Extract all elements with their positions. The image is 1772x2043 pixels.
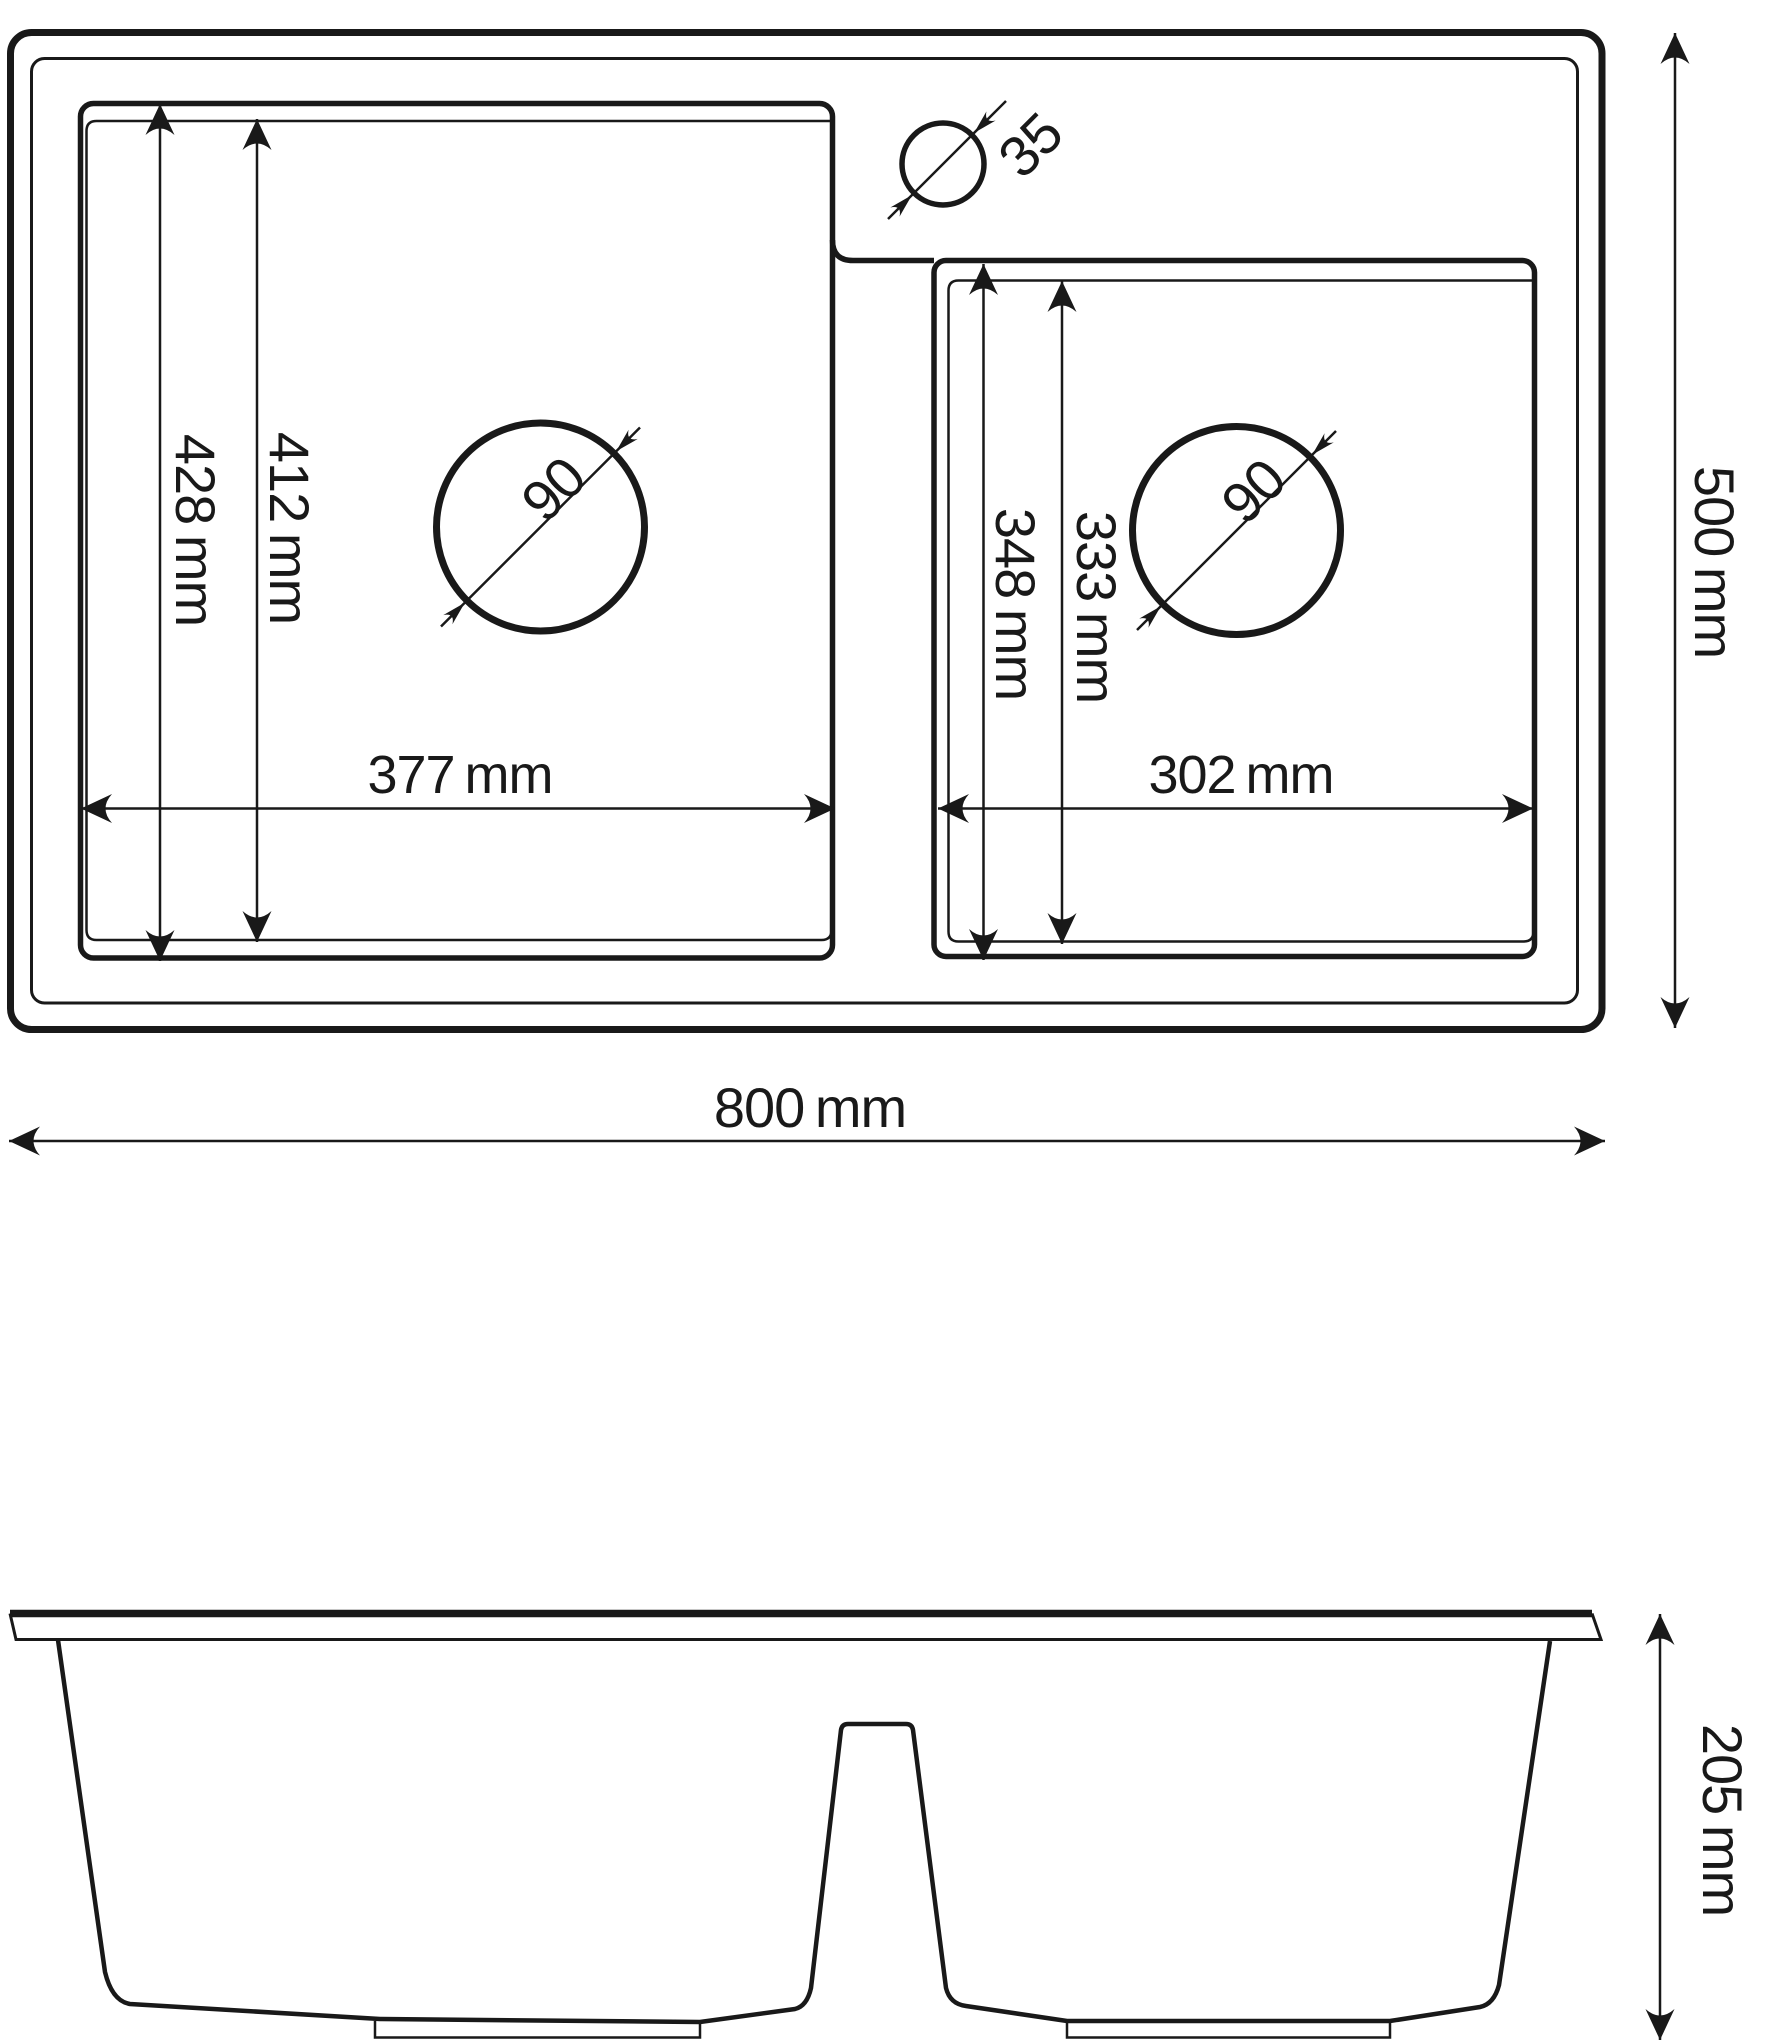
svg-text:333 mm: 333 mm [1065, 511, 1128, 703]
svg-text:348 mm: 348 mm [984, 508, 1047, 700]
svg-text:205 mm: 205 mm [1691, 1724, 1754, 1916]
svg-text:90: 90 [1209, 447, 1298, 536]
svg-text:35: 35 [986, 101, 1075, 190]
svg-text:90: 90 [509, 445, 598, 534]
svg-text:500 mm: 500 mm [1683, 466, 1746, 658]
svg-text:800 mm: 800 mm [714, 1076, 906, 1139]
svg-text:428 mm: 428 mm [164, 434, 227, 626]
svg-text:412 mm: 412 mm [258, 432, 321, 624]
svg-text:377 mm: 377 mm [367, 745, 552, 805]
svg-text:302 mm: 302 mm [1148, 745, 1333, 805]
